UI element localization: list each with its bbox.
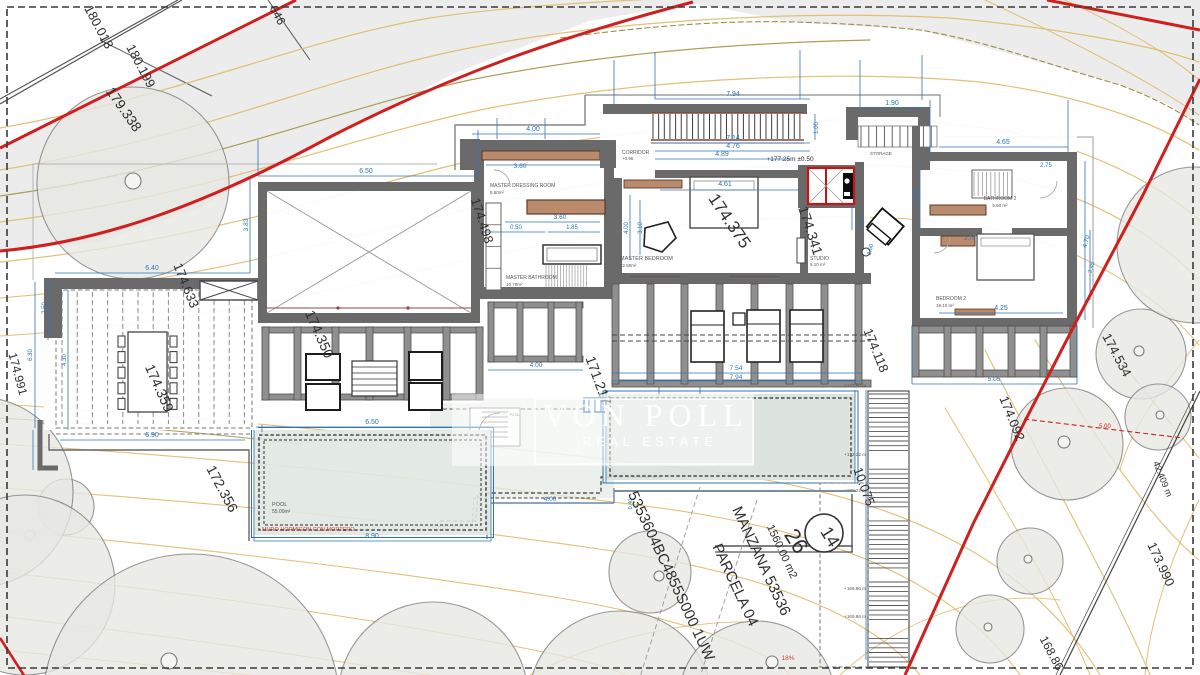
svg-text:STORAGE: STORAGE	[870, 151, 892, 156]
svg-text:7.14: 7.14	[726, 135, 740, 142]
svg-text:7.94: 7.94	[726, 91, 740, 98]
svg-text:MURO HORMIGON CON MORTERO: MURO HORMIGON CON MORTERO	[262, 527, 355, 533]
svg-text:4.76: 4.76	[726, 143, 740, 150]
svg-text:19.10 m²: 19.10 m²	[936, 303, 954, 308]
svg-text:4.00: 4.00	[530, 362, 543, 369]
svg-text:+177.25m ±0.50: +177.25m ±0.50	[766, 156, 814, 163]
svg-text:10.70m²: 10.70m²	[506, 282, 523, 287]
svg-text:6.90: 6.90	[145, 432, 159, 439]
svg-text:4.25: 4.25	[994, 305, 1008, 312]
svg-text:5.00: 5.00	[1099, 424, 1111, 430]
svg-text:0.90: 0.90	[914, 189, 920, 201]
svg-text:MASTER BATHROOM: MASTER BATHROOM	[506, 275, 557, 281]
svg-text:BATHROOM 2: BATHROOM 2	[984, 196, 1017, 202]
svg-text:22.50m²: 22.50m²	[620, 263, 637, 268]
svg-text:4.89: 4.89	[715, 151, 729, 158]
svg-text:2.75: 2.75	[1040, 163, 1052, 169]
svg-text:5.10 m²: 5.10 m²	[810, 262, 826, 267]
svg-text:6.50: 6.50	[359, 168, 373, 175]
svg-text:+173.90 m: +173.90 m	[844, 383, 866, 388]
svg-text:3.83: 3.83	[243, 218, 250, 231]
svg-text:4.00: 4.00	[624, 222, 630, 234]
svg-text:4.00: 4.00	[544, 496, 557, 503]
svg-text:0.50: 0.50	[510, 225, 522, 231]
svg-text:2.75: 2.75	[964, 236, 976, 242]
svg-text:POOL: POOL	[272, 502, 287, 508]
svg-text:2.50: 2.50	[42, 302, 48, 314]
svg-text:3.10: 3.10	[638, 222, 644, 234]
svg-text:6.30: 6.30	[28, 349, 34, 361]
svg-text:4.65: 4.65	[996, 139, 1010, 146]
svg-text:7.54: 7.54	[730, 365, 743, 372]
svg-text:REAL ESTATE: REAL ESTATE	[582, 434, 717, 449]
svg-text:8.80m²: 8.80m²	[490, 190, 505, 195]
svg-text:MASTER DRESSING ROOM: MASTER DRESSING ROOM	[490, 183, 555, 189]
svg-text:1.85: 1.85	[566, 225, 578, 231]
svg-text:4.00: 4.00	[526, 126, 540, 133]
svg-text:1.90: 1.90	[885, 100, 899, 107]
svg-text:+169.86 m: +169.86 m	[844, 614, 866, 619]
svg-text:7.94: 7.94	[730, 374, 743, 381]
svg-text:5.05: 5.05	[988, 376, 1001, 383]
svg-text:+0.96: +0.96	[622, 156, 634, 161]
svg-text:18%: 18%	[781, 655, 794, 662]
svg-text:6.40: 6.40	[145, 265, 159, 272]
svg-text:8.90: 8.90	[365, 533, 379, 540]
svg-text:MASTER BEDROOM: MASTER BEDROOM	[620, 256, 673, 262]
svg-text:3.60: 3.60	[514, 163, 527, 170]
svg-text:4.30: 4.30	[62, 354, 68, 366]
svg-text:6.50: 6.50	[365, 419, 379, 426]
svg-text:VON POLL: VON POLL	[543, 397, 748, 433]
svg-text:5.60 m²: 5.60 m²	[992, 203, 1008, 208]
svg-text:55.00m²: 55.00m²	[272, 509, 291, 515]
svg-text:+169.86 m: +169.86 m	[844, 586, 866, 591]
svg-text:3.60: 3.60	[554, 214, 567, 221]
svg-text:BEDROOM 2: BEDROOM 2	[936, 296, 966, 302]
svg-text:4.61: 4.61	[718, 181, 732, 188]
svg-text:1.00: 1.00	[814, 122, 820, 134]
